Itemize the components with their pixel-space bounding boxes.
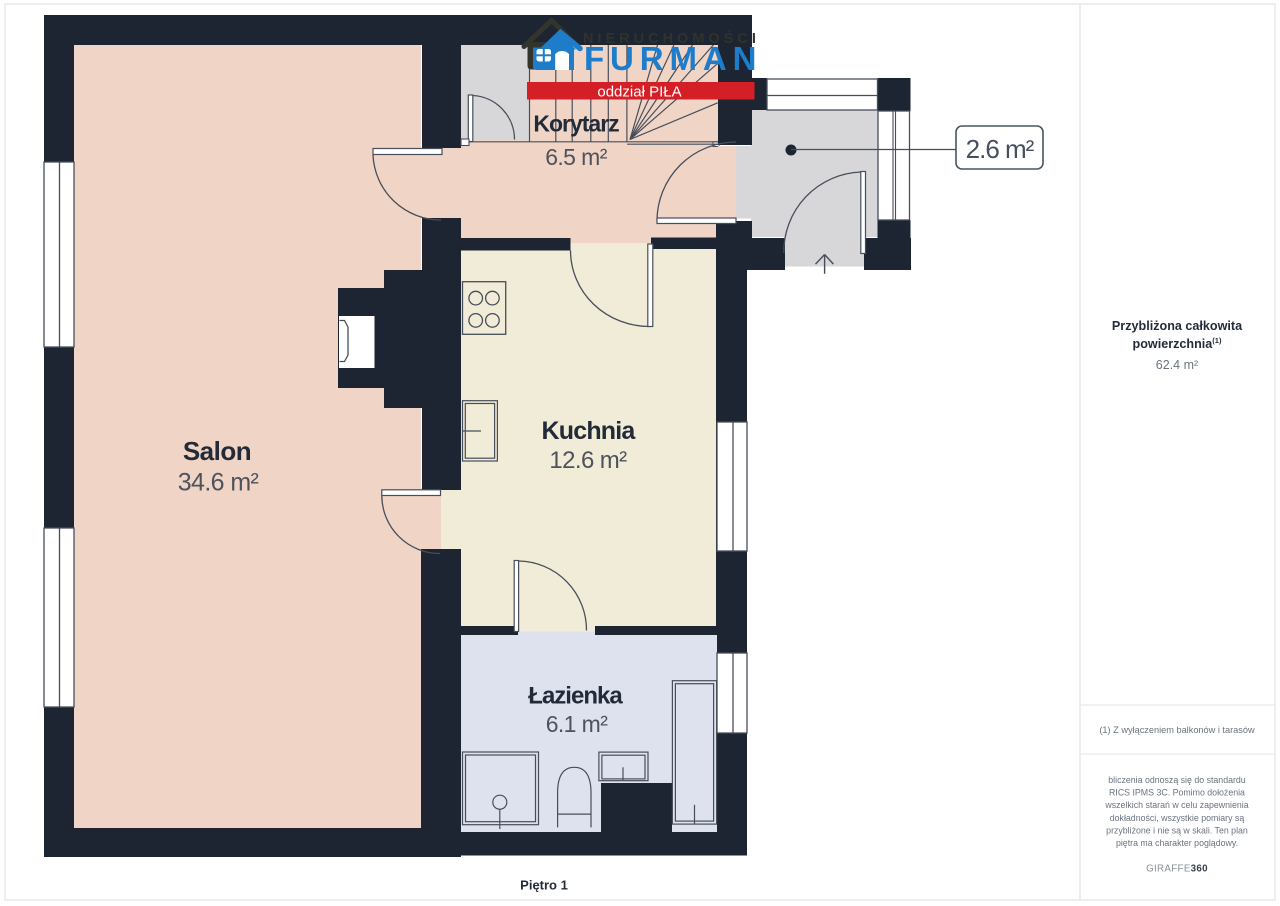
svg-text:powierzchnia(1): powierzchnia(1): [1133, 336, 1222, 351]
svg-text:Salon: Salon: [183, 436, 251, 466]
svg-text:GIRAFFE360: GIRAFFE360: [1146, 864, 1208, 875]
svg-text:wszelkich starań w celu zapewn: wszelkich starań w celu zapewnienia: [1104, 800, 1248, 810]
svg-text:bliczenia odnoszą się do stand: bliczenia odnoszą się do standardu: [1108, 775, 1246, 785]
svg-text:12.6 m²: 12.6 m²: [549, 447, 627, 474]
svg-text:2.6 m²: 2.6 m²: [966, 134, 1035, 164]
svg-text:FURMAN: FURMAN: [584, 40, 762, 77]
svg-text:Łazienka: Łazienka: [528, 683, 623, 710]
svg-text:Kuchnia: Kuchnia: [541, 417, 636, 445]
svg-text:RICS IPMS 3C. Pomimo dołożenia: RICS IPMS 3C. Pomimo dołożenia: [1109, 788, 1245, 798]
svg-text:Przybliżona całkowita: Przybliżona całkowita: [1112, 319, 1243, 333]
svg-text:(1) Z wyłączeniem balkonów i t: (1) Z wyłączeniem balkonów i tarasów: [1099, 725, 1255, 735]
svg-text:Piętro 1: Piętro 1: [520, 878, 568, 893]
svg-text:62.4 m²: 62.4 m²: [1156, 358, 1198, 372]
svg-text:Korytarz: Korytarz: [533, 111, 619, 137]
svg-text:oddział PIŁA: oddział PIŁA: [597, 84, 681, 101]
svg-text:6.1 m²: 6.1 m²: [546, 711, 609, 737]
svg-text:dokładności, wszystkie pomiary: dokładności, wszystkie pomiary są: [1110, 813, 1245, 823]
svg-text:6.5 m²: 6.5 m²: [545, 144, 608, 170]
svg-text:przybliżone i nie są w skali.: przybliżone i nie są w skali. Ten plan: [1106, 825, 1248, 835]
svg-text:piętra ma charakter poglądowy.: piętra ma charakter poglądowy.: [1116, 838, 1238, 848]
svg-text:34.6 m²: 34.6 m²: [178, 469, 259, 497]
